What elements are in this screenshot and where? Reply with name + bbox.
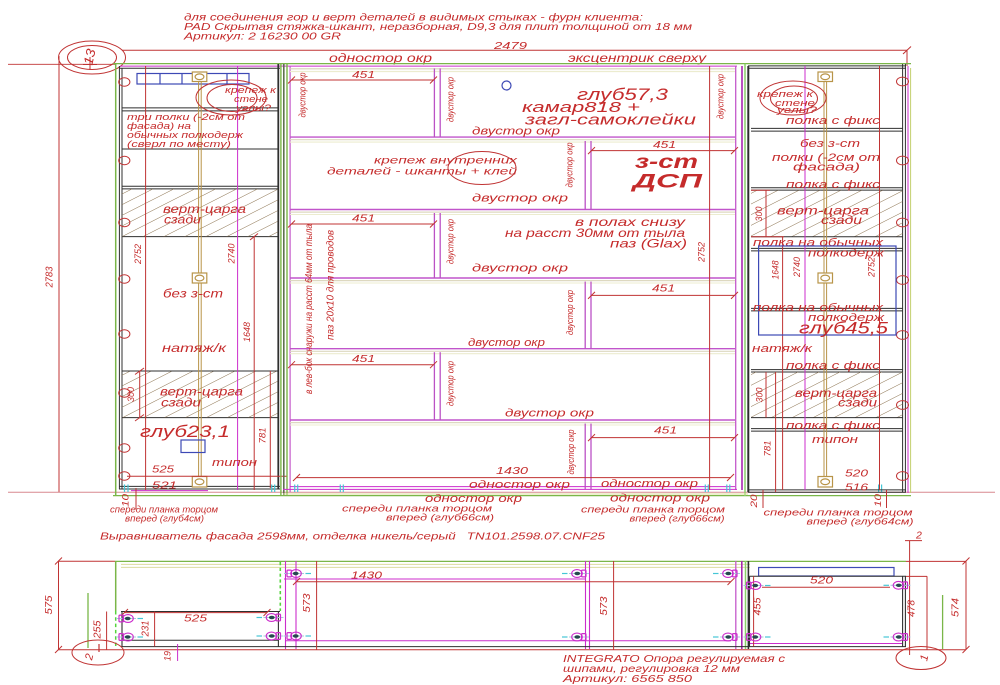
- svg-text:1648: 1648: [242, 321, 253, 342]
- svg-text:одностор окр: одностор окр: [469, 479, 570, 491]
- svg-text:двустор окр: двустор окр: [472, 263, 568, 275]
- svg-text:300: 300: [754, 388, 764, 403]
- svg-text:19: 19: [162, 650, 173, 661]
- svg-text:сзади: сзади: [821, 213, 862, 227]
- svg-text:255: 255: [92, 620, 103, 640]
- svg-text:полка с фикс: полка с фикс: [786, 179, 881, 191]
- svg-text:451: 451: [352, 353, 375, 365]
- svg-text:вперед (глуб66см): вперед (глуб66см): [386, 513, 494, 523]
- svg-text:натяж/к: натяж/к: [162, 343, 227, 355]
- svg-text:2740: 2740: [792, 256, 803, 278]
- svg-text:521: 521: [152, 480, 177, 492]
- svg-text:типон: типон: [812, 434, 858, 446]
- svg-text:сзади: сзади: [161, 398, 202, 410]
- svg-text:478: 478: [907, 600, 918, 617]
- svg-text:глуб23,1: глуб23,1: [140, 422, 230, 441]
- svg-text:двустор окр: двустор окр: [446, 77, 456, 122]
- svg-text:полка с фикс: полка с фикс: [786, 115, 881, 127]
- svg-text:451: 451: [352, 69, 375, 81]
- svg-text:ДСП: ДСП: [630, 172, 703, 193]
- svg-text:одностор окр: одностор окр: [610, 493, 710, 505]
- svg-text:Артикул: 6565 850: Артикул: 6565 850: [562, 673, 693, 685]
- svg-text:451: 451: [653, 139, 676, 151]
- svg-text:516: 516: [845, 482, 868, 494]
- svg-text:в лев-бок снаружи на расст 64м: в лев-бок снаружи на расст 64мм от тыла: [304, 224, 315, 394]
- svg-text:2479: 2479: [493, 40, 528, 52]
- svg-text:455: 455: [753, 597, 764, 615]
- svg-text:2783: 2783: [45, 266, 56, 288]
- svg-text:451: 451: [654, 425, 677, 437]
- svg-text:фасада): фасада): [793, 162, 861, 174]
- svg-text:двустор окр: двустор окр: [468, 337, 545, 349]
- svg-text:вперед (глуб4см): вперед (глуб4см): [125, 514, 204, 524]
- svg-text:глуб45,5: глуб45,5: [799, 319, 889, 338]
- svg-text:781: 781: [762, 441, 773, 457]
- svg-text:781: 781: [257, 428, 268, 444]
- svg-text:вперед (глуб64см): вперед (глуб64см): [807, 517, 914, 527]
- svg-text:574: 574: [950, 598, 961, 617]
- svg-text:Артикул: 2 16230 00 GR: Артикул: 2 16230 00 GR: [183, 32, 341, 43]
- svg-text:20: 20: [749, 494, 760, 509]
- svg-text:451: 451: [352, 213, 375, 225]
- svg-text:1430: 1430: [351, 570, 382, 582]
- svg-text:полка с фикс: полка с фикс: [786, 420, 881, 432]
- svg-text:231: 231: [140, 621, 151, 638]
- svg-text:паз 20х10 для проводов: паз 20х10 для проводов: [326, 230, 337, 340]
- svg-text:сзади: сзади: [838, 396, 877, 410]
- svg-text:одностор окр: одностор окр: [601, 478, 698, 490]
- svg-text:575: 575: [44, 595, 55, 614]
- svg-text:2752: 2752: [133, 243, 144, 265]
- svg-text:300: 300: [754, 207, 764, 222]
- svg-text:з-ст: з-ст: [635, 152, 698, 173]
- svg-text:двустор окр: двустор окр: [505, 408, 594, 420]
- svg-text:2: 2: [915, 530, 922, 542]
- svg-text:300: 300: [126, 387, 136, 402]
- svg-text:полкодерж: полкодерж: [808, 248, 885, 260]
- svg-text:сзади: сзади: [164, 215, 202, 227]
- svg-text:двустор окр: двустор окр: [565, 290, 575, 335]
- svg-text:без з-ст: без з-ст: [800, 138, 860, 150]
- svg-text:520: 520: [810, 575, 833, 587]
- svg-text:2752: 2752: [866, 256, 877, 278]
- svg-text:двустор окр: двустор окр: [716, 74, 726, 119]
- svg-text:1648: 1648: [770, 260, 781, 280]
- svg-text:двустор окр: двустор окр: [566, 429, 576, 474]
- svg-text:двустор окр: двустор окр: [446, 361, 456, 406]
- svg-text:2740: 2740: [227, 243, 238, 265]
- svg-text:573: 573: [302, 593, 313, 612]
- svg-text:2752: 2752: [697, 241, 708, 263]
- svg-text:вперед (глуб66см): вперед (глуб66см): [630, 514, 725, 524]
- svg-text:без з-ст: без з-ст: [163, 289, 224, 301]
- svg-text:двустор окр: двустор окр: [565, 142, 575, 187]
- svg-text:Выравниватель фасада 2598мм, о: Выравниватель фасада 2598мм, отделка ник…: [100, 531, 605, 543]
- svg-text:573: 573: [599, 596, 610, 615]
- svg-text:10: 10: [873, 493, 884, 507]
- svg-text:1430: 1430: [496, 465, 528, 477]
- svg-text:525: 525: [152, 464, 174, 476]
- svg-text:525: 525: [184, 613, 207, 625]
- svg-text:натяж/к: натяж/к: [752, 343, 813, 355]
- svg-text:451: 451: [652, 283, 675, 295]
- svg-text:типон: типон: [212, 457, 257, 469]
- svg-text:паз (Glax): паз (Glax): [610, 237, 687, 251]
- svg-text:двустор окр: двустор окр: [298, 72, 308, 117]
- svg-text:(сверл по месту): (сверл по месту): [127, 139, 231, 150]
- svg-text:деталей - шканты + клей: деталей - шканты + клей: [327, 166, 517, 178]
- svg-text:полка с фикс: полка с фикс: [786, 360, 881, 372]
- svg-text:520: 520: [845, 468, 868, 480]
- svg-text:двустор окр: двустор окр: [446, 219, 456, 264]
- svg-text:загл-самоклейки: загл-самоклейки: [524, 112, 697, 129]
- svg-text:двустор окр: двустор окр: [472, 193, 568, 205]
